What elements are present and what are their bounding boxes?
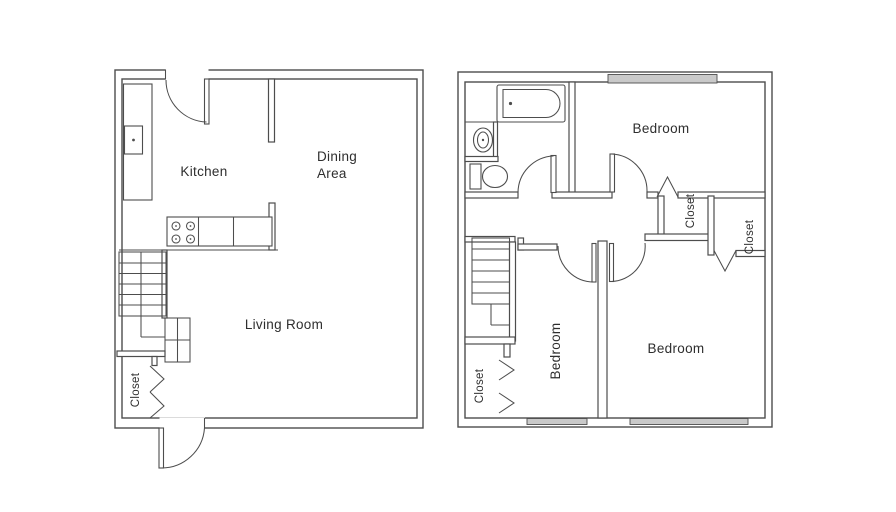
room-label-closet-bottom-left: Closet xyxy=(474,368,486,403)
bedroom-divider-wall xyxy=(598,241,607,418)
bathtub-icon xyxy=(497,85,565,122)
toilet-icon xyxy=(470,164,508,189)
closet-wall xyxy=(708,196,714,255)
stairwell-wall xyxy=(510,242,516,341)
window-top xyxy=(608,75,717,84)
room-label-living-room: Living Room xyxy=(245,317,323,332)
bathroom-bedroom-wall xyxy=(569,82,575,196)
door-leaf xyxy=(592,244,596,283)
closet-door-jamb xyxy=(504,344,510,357)
room-label-bedroom-bottom-left: Bedroom xyxy=(548,323,563,380)
window-bottom-right xyxy=(630,419,748,425)
room-label-closet-far-right: Closet xyxy=(744,219,756,254)
closet-wall xyxy=(465,337,515,344)
closet-wall xyxy=(645,234,712,241)
room-label-closet-first-floor: Closet xyxy=(130,372,142,407)
room-label-dining-line2: Area xyxy=(317,166,347,181)
room-label-kitchen: Kitchen xyxy=(180,164,227,179)
window-bottom-left xyxy=(527,419,587,425)
sink-icon xyxy=(474,128,493,152)
kitchen-counter-bottom xyxy=(167,217,272,246)
bedroom-wall xyxy=(518,244,557,250)
door-leaf xyxy=(159,428,164,468)
closet-wall xyxy=(658,196,664,238)
bathroom-wall xyxy=(465,192,518,198)
room-label-dining-line1: Dining xyxy=(317,149,357,164)
room-label-bedroom-bottom-right: Bedroom xyxy=(648,341,705,356)
door-leaf xyxy=(610,154,615,192)
hall-wall xyxy=(552,192,612,198)
floor-plan-diagram: Kitchen Dining Area Living Room Closet xyxy=(0,0,896,512)
closet-door-jamb xyxy=(152,357,157,366)
closet-wall xyxy=(117,351,165,357)
hall-wall xyxy=(647,192,658,198)
sink-alcove-wall xyxy=(465,157,498,162)
door-leaf xyxy=(205,79,210,124)
door-leaf xyxy=(551,156,556,193)
kitchen-dining-wall-stub xyxy=(269,79,275,142)
door-leaf xyxy=(610,244,614,282)
room-label-closet-top-right: Closet xyxy=(685,193,697,228)
room-label-bedroom-top: Bedroom xyxy=(633,121,690,136)
sink-alcove-wall xyxy=(494,122,498,158)
